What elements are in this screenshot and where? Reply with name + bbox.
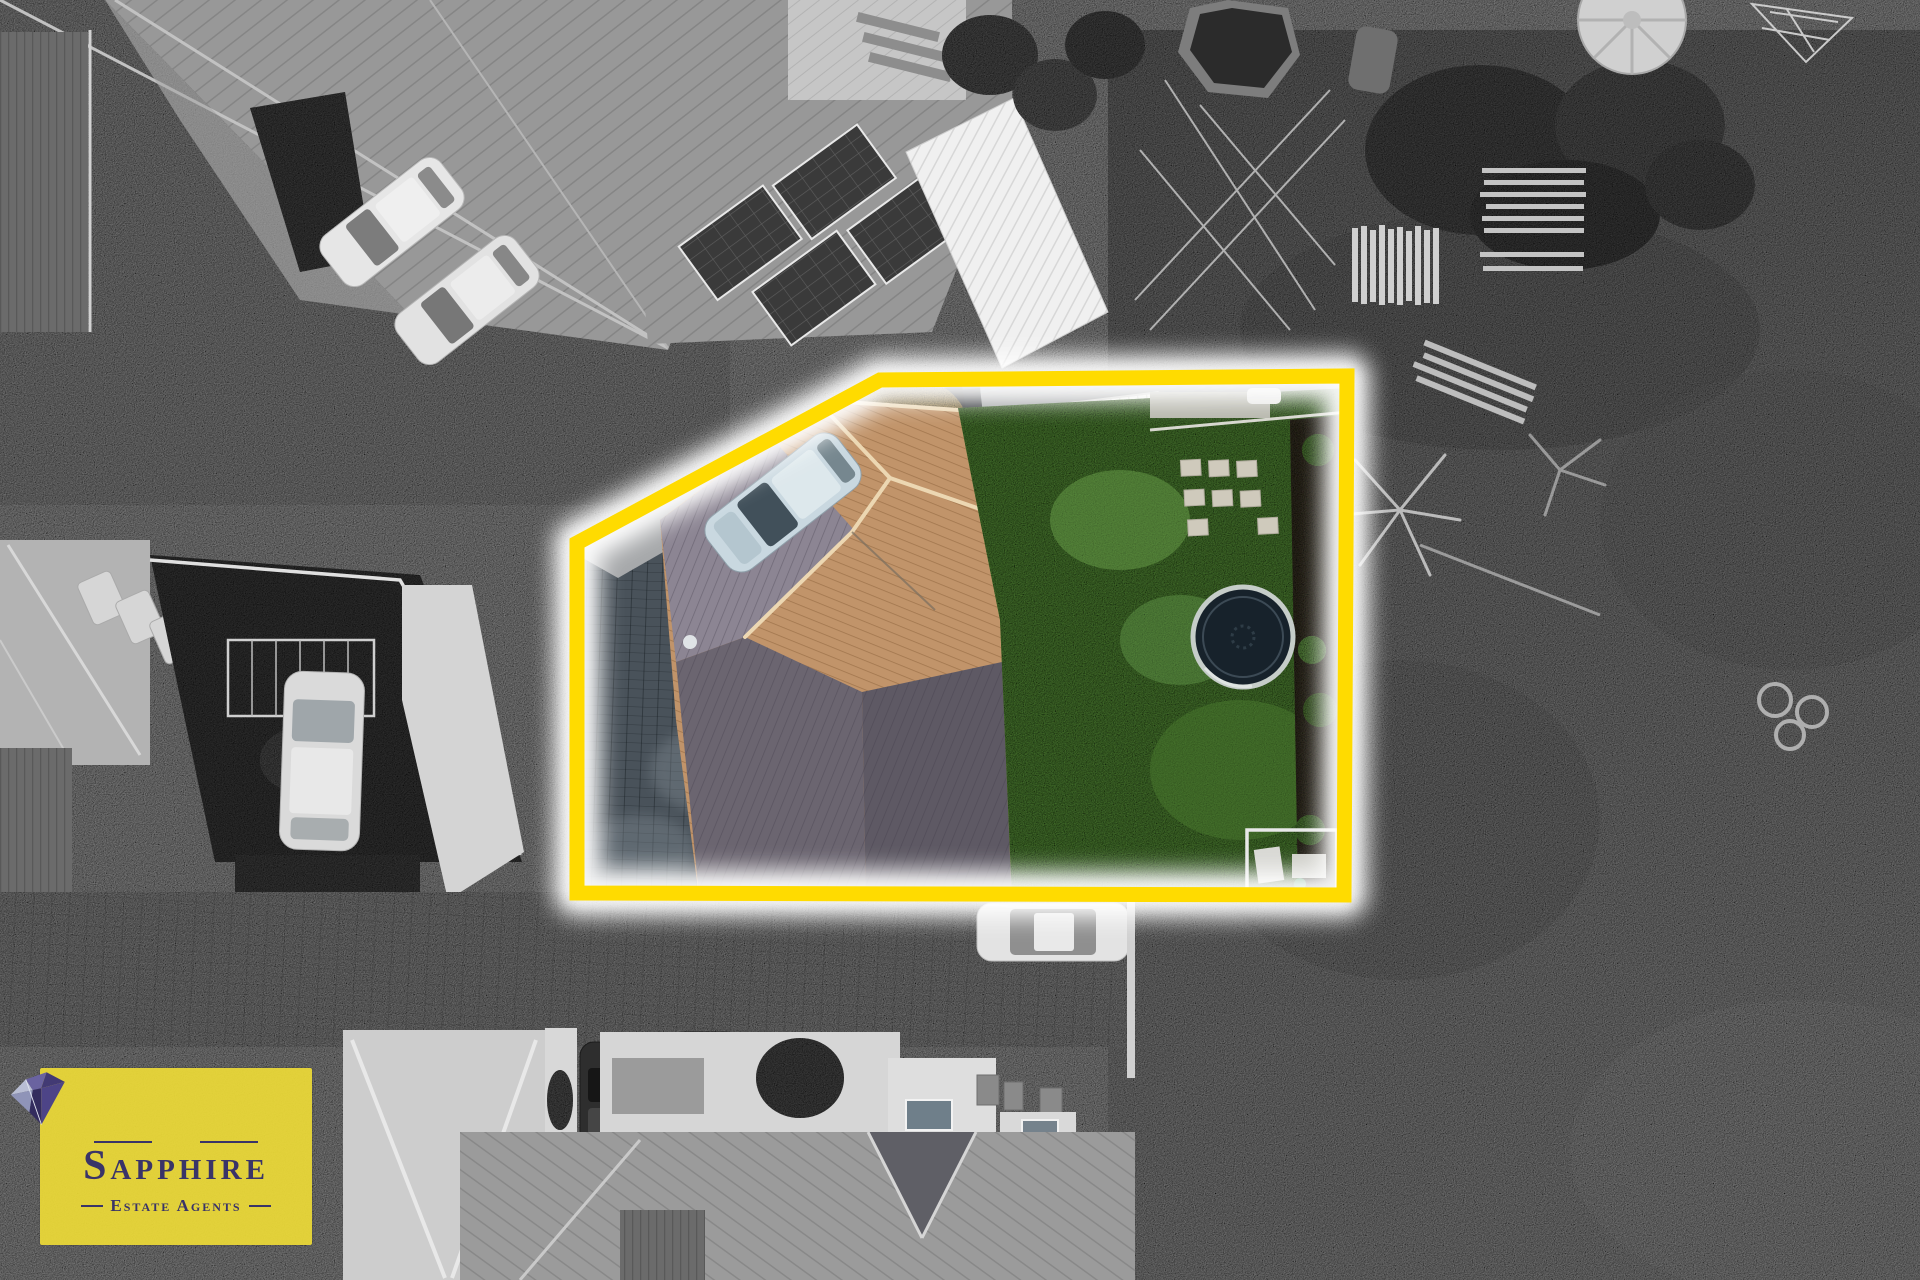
trampoline — [1193, 587, 1293, 687]
satellite-dish — [683, 635, 697, 649]
tagline-dash-right — [249, 1205, 271, 1207]
white-car-left — [279, 671, 365, 852]
skylight — [906, 1100, 952, 1130]
tree-bottom — [756, 1038, 844, 1118]
boundary-fence-bottom — [1127, 892, 1135, 1078]
back-lawn — [958, 388, 1350, 900]
agency-name: Sapphire — [40, 1144, 312, 1188]
aerial-photo-stage: Sapphire Estate Agents — [0, 0, 1920, 1280]
agency-tagline: Estate Agents — [110, 1196, 241, 1216]
diamond-icon — [7, 1068, 73, 1128]
building-left-edge — [0, 32, 88, 332]
tagline-dash-left — [81, 1205, 103, 1207]
timber-deck — [788, 0, 966, 100]
agency-logo-panel: Sapphire Estate Agents — [40, 1068, 312, 1245]
